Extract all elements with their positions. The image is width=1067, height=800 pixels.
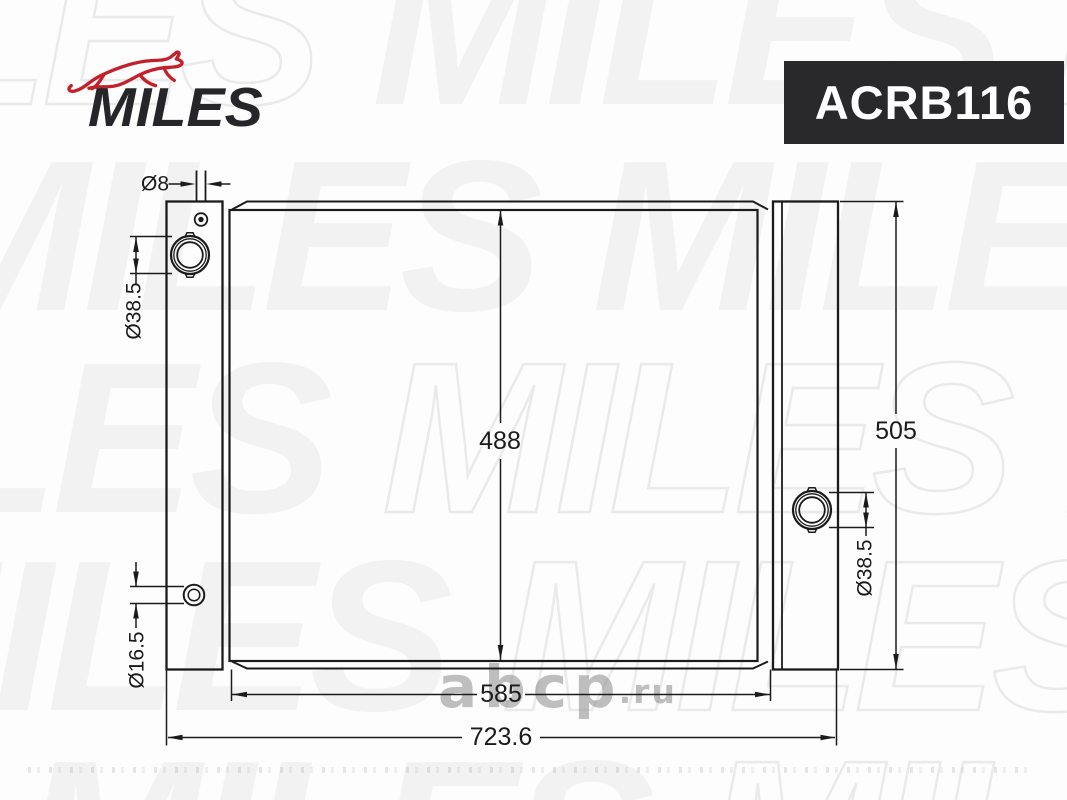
dim-core-width: 585 (232, 670, 771, 709)
dim-left-port-diameter: Ø38.5 (123, 237, 173, 340)
dim-label-core-width: 585 (480, 680, 522, 708)
dim-label-left-port: Ø38.5 (123, 282, 146, 339)
right-outlet-port (793, 488, 831, 532)
dim-core-height: 488 (479, 211, 521, 661)
dim-label-top-hole: Ø8 (141, 173, 169, 196)
dim-label-overall-height: 505 (875, 417, 917, 445)
right-tank (773, 202, 838, 670)
dim-label-bottom-left-port: Ø16.5 (126, 631, 149, 688)
bottom-left-port (184, 585, 205, 606)
dim-overall-height: 505 (840, 202, 917, 670)
left-inlet-port (171, 233, 209, 277)
part-number-text: ACRB116 (815, 79, 1034, 126)
left-tank (167, 202, 223, 670)
dim-label-overall-width: 723.6 (470, 723, 533, 751)
brand-wordmark: MILES (88, 80, 263, 135)
part-number-badge: ACRB116 (784, 61, 1064, 144)
dim-label-core-height: 488 (479, 427, 521, 455)
miles-logo: MILES (60, 42, 320, 147)
dim-label-right-port: Ø38.5 (854, 539, 877, 596)
top-mount-hole (195, 171, 208, 226)
radiator-spec-sheet: MILESMILESMILES MILESMILESMILES MILESMIL… (0, 0, 1067, 800)
dim-right-port-diameter: Ø38.5 (829, 493, 877, 597)
dim-top-hole-diameter: Ø8 (141, 173, 231, 196)
